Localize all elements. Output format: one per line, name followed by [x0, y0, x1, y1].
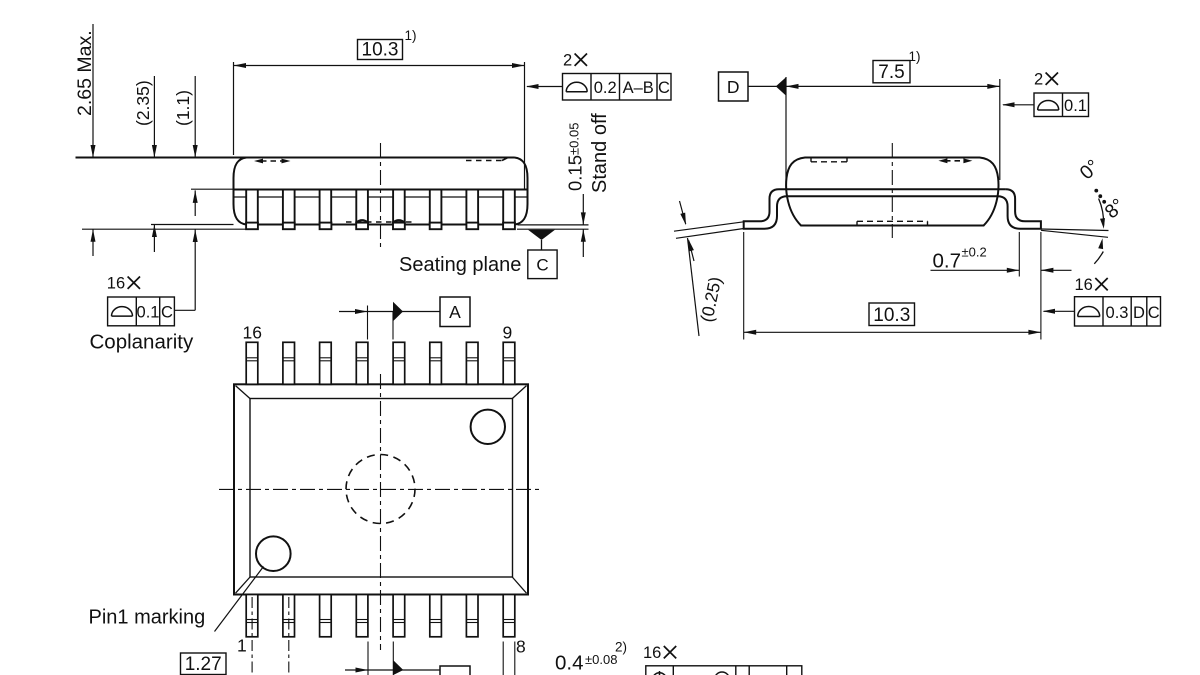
- svg-text:16: 16: [107, 275, 125, 293]
- svg-text:D: D: [1133, 304, 1145, 322]
- svg-text:A: A: [449, 302, 461, 322]
- svg-text:1.27: 1.27: [185, 654, 222, 675]
- svg-text:0.7: 0.7: [933, 250, 962, 273]
- svg-text:10.3: 10.3: [873, 305, 910, 326]
- svg-text:B: B: [449, 671, 461, 675]
- svg-text:A–B: A–B: [623, 79, 654, 97]
- svg-text:0.3: 0.3: [1106, 304, 1129, 322]
- svg-text:Pin1 marking: Pin1 marking: [89, 607, 206, 629]
- svg-text:±0.08: ±0.08: [585, 652, 617, 667]
- svg-text:C: C: [1148, 304, 1160, 322]
- svg-text:10.3: 10.3: [362, 40, 399, 61]
- svg-text:(1.1): (1.1): [173, 90, 193, 126]
- svg-text:D: D: [727, 77, 740, 97]
- svg-text:7.5: 7.5: [878, 62, 904, 83]
- svg-text:(2.35): (2.35): [133, 80, 153, 126]
- svg-text:2: 2: [1034, 71, 1043, 89]
- svg-text:Stand off: Stand off: [589, 113, 611, 193]
- svg-text:16: 16: [643, 644, 661, 662]
- svg-text:C: C: [658, 79, 670, 97]
- svg-text:0.4: 0.4: [555, 652, 584, 675]
- svg-text:±0.2: ±0.2: [962, 245, 987, 260]
- svg-text:Coplanarity: Coplanarity: [90, 331, 194, 354]
- svg-text:C: C: [536, 256, 548, 275]
- svg-text:0.1: 0.1: [137, 304, 160, 322]
- svg-text:8: 8: [516, 637, 526, 657]
- svg-text:0.2: 0.2: [594, 79, 617, 97]
- svg-text:1): 1): [909, 49, 921, 64]
- svg-text:C: C: [161, 304, 173, 322]
- svg-text:0.1: 0.1: [1064, 97, 1087, 115]
- svg-text:9: 9: [503, 323, 513, 343]
- svg-text:Seating plane: Seating plane: [399, 254, 521, 276]
- svg-text:2): 2): [615, 640, 627, 655]
- svg-text:2: 2: [563, 52, 572, 70]
- svg-text:16: 16: [243, 323, 262, 343]
- svg-text:16: 16: [1075, 276, 1093, 294]
- svg-text:1): 1): [405, 28, 417, 43]
- svg-text:1: 1: [237, 636, 247, 656]
